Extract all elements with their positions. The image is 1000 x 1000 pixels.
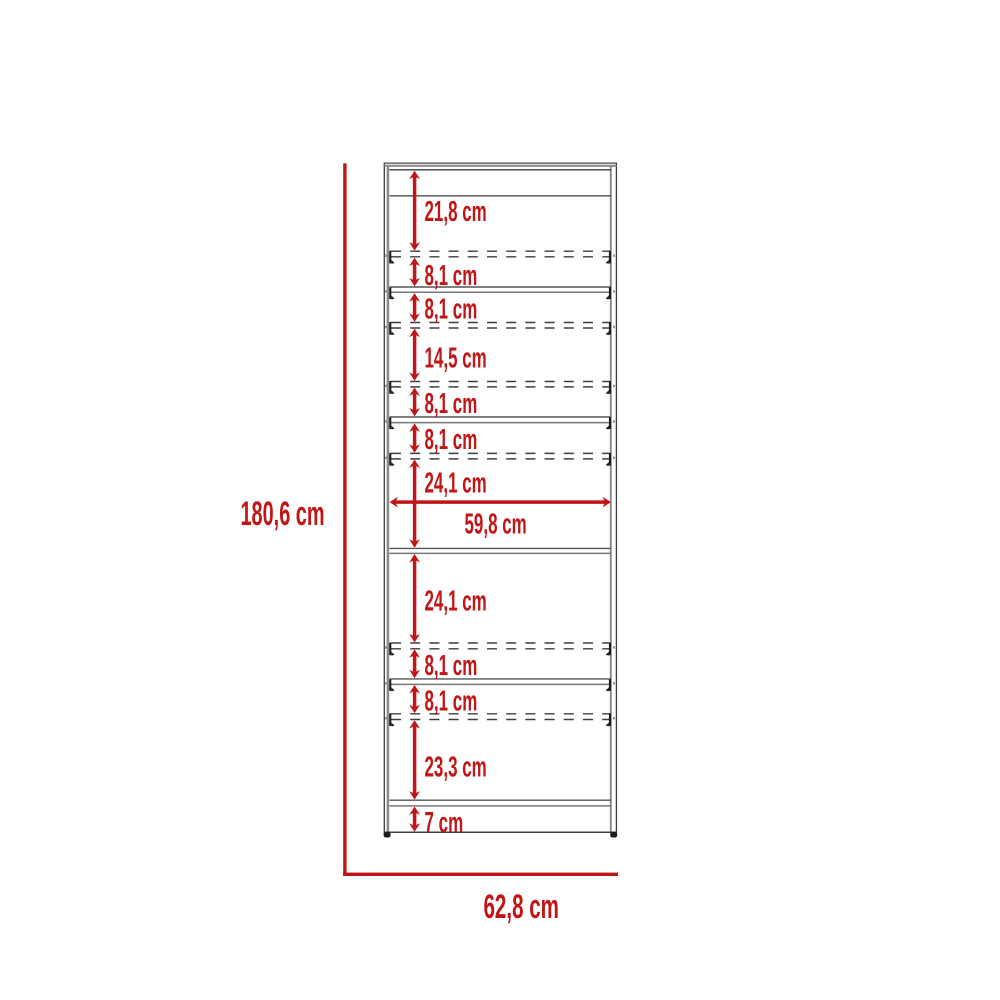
svg-text:24,1 cm: 24,1 cm <box>425 585 487 618</box>
svg-text:62,8 cm: 62,8 cm <box>484 888 559 926</box>
svg-text:8,1 cm: 8,1 cm <box>425 649 478 682</box>
svg-text:8,1 cm: 8,1 cm <box>425 685 478 718</box>
svg-text:14,5 cm: 14,5 cm <box>425 342 487 375</box>
svg-text:8,1 cm: 8,1 cm <box>425 387 478 420</box>
svg-text:59,8 cm: 59,8 cm <box>465 508 527 541</box>
svg-text:8,1 cm: 8,1 cm <box>425 293 478 326</box>
svg-text:7 cm: 7 cm <box>425 806 464 839</box>
svg-text:21,8 cm: 21,8 cm <box>425 196 487 229</box>
svg-text:8,1 cm: 8,1 cm <box>425 259 478 292</box>
svg-text:8,1 cm: 8,1 cm <box>425 423 478 456</box>
svg-text:180,6 cm: 180,6 cm <box>241 495 325 533</box>
svg-text:23,3 cm: 23,3 cm <box>425 751 487 784</box>
svg-text:24,1 cm: 24,1 cm <box>425 467 487 500</box>
